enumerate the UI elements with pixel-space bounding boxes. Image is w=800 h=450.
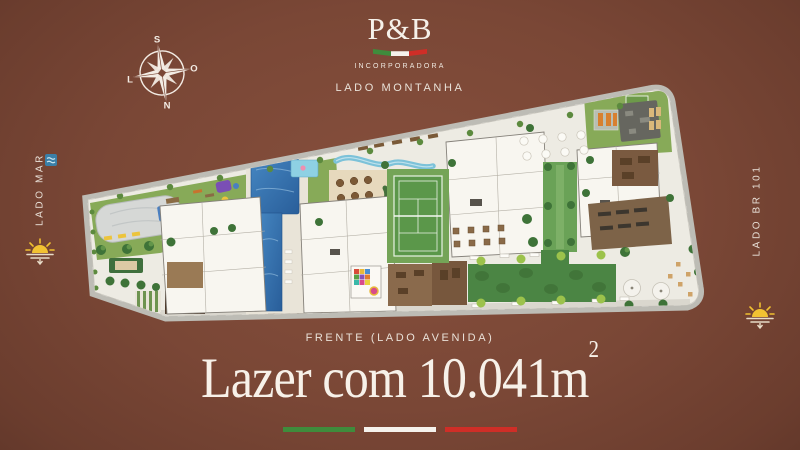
brand-subtitle: INCORPORADORA [0,63,800,70]
kids-playroom [351,266,381,298]
flag-bar-red [445,427,517,432]
brand-logo: P&B INCORPORADORA [0,14,800,70]
flag-bar-white [364,427,436,432]
label-lado-montanha: LADO MONTANHA [0,82,800,94]
brand-flag-ribbon-icon [372,48,428,57]
kids-pool [291,160,318,177]
headline-text: Lazer com 10.041m [201,347,589,410]
brand-name: P&B [0,14,800,44]
flamingo-float [300,165,305,170]
flag-bar [283,427,517,432]
compass-bottom-letter: N [164,101,171,112]
headline-superscript: 2 [589,337,600,363]
waves-icon [45,154,57,166]
garden-pavilion [109,258,143,273]
gym-deck [588,196,672,250]
label-lado-br101: LADO BR 101 [752,156,763,266]
label-frente-avenida: FRENTE (LADO AVENIDA) [0,332,800,344]
label-lado-mar: LADO MAR [35,147,46,233]
tennis-court [387,169,449,263]
headline: Lazer com 10.041m2 [48,346,752,411]
flag-bar-green [283,427,355,432]
poster: S O N L P&B INCORPORADORA LADO MONTANHA … [0,0,800,450]
sunset-icon [742,300,778,330]
sunset-icon [22,236,58,266]
